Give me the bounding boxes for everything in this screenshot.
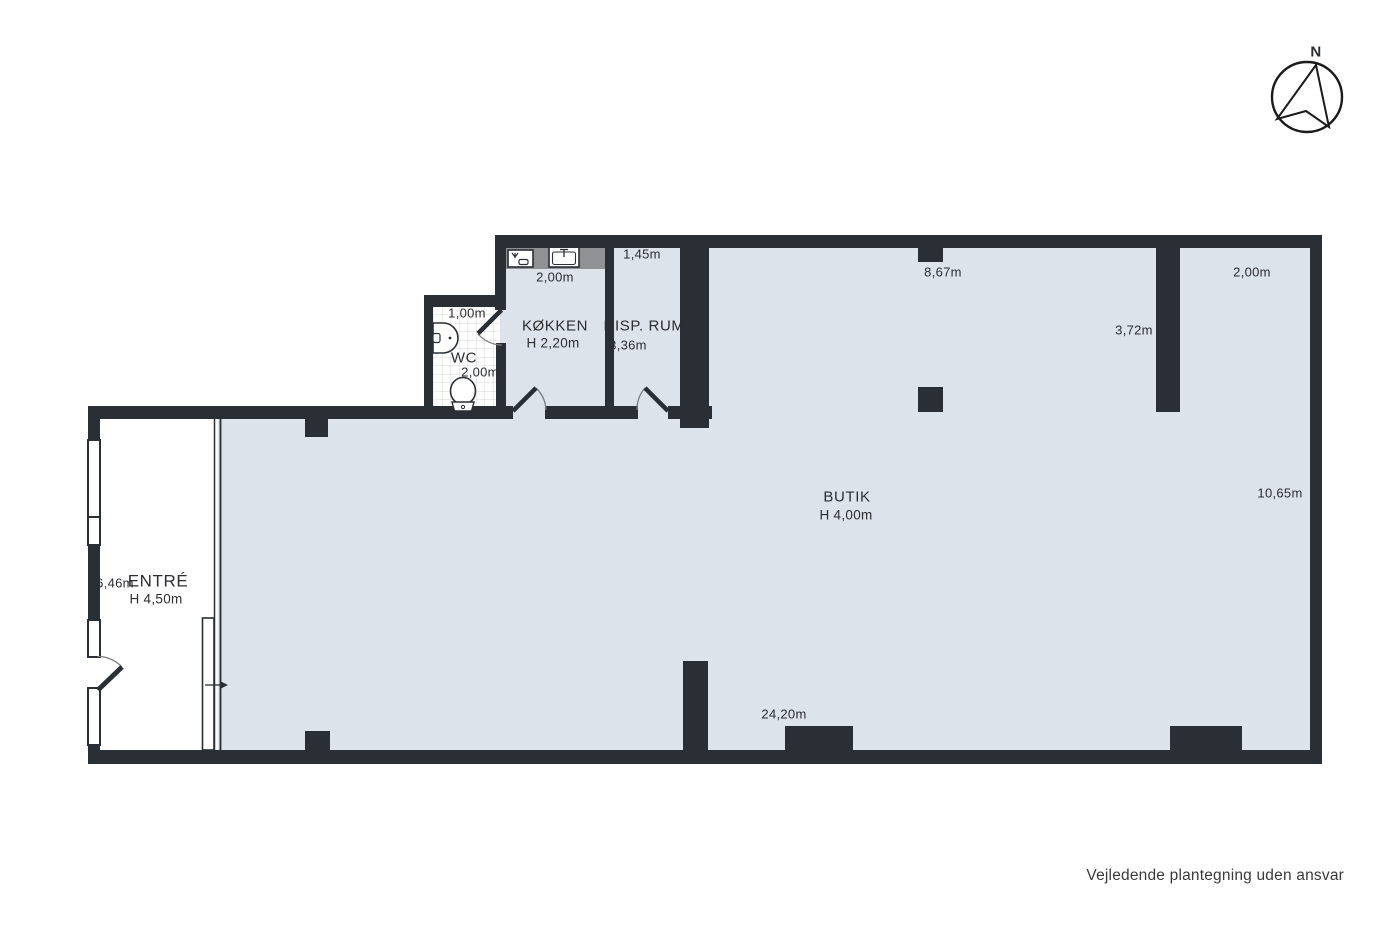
floor-plan-canvas xyxy=(0,0,1400,933)
dim-butik-bottom: 24,20m xyxy=(761,708,806,721)
compass-icon xyxy=(1272,62,1342,132)
dim-disp-width: 1,45m xyxy=(623,248,661,261)
dim-butik-inner-wall: 3,72m xyxy=(1115,324,1153,337)
wall-inner-372 xyxy=(1156,248,1180,412)
window-icon xyxy=(88,620,100,657)
dim-disp-depth: 3,36m xyxy=(609,339,647,352)
pilaster xyxy=(305,731,330,750)
wall-right xyxy=(1310,235,1322,764)
wall-stub-bottom xyxy=(683,661,708,750)
wall-protrusion xyxy=(785,726,853,750)
disclaimer-text: Vejledende plantegning uden ansvar xyxy=(1086,867,1344,885)
floor-plan-page: N 1,00m WC 2,00m 2,00m KØKKEN H 2,20m 1,… xyxy=(0,0,1400,933)
dim-kokken-width: 2,00m xyxy=(536,271,574,284)
window-icon xyxy=(88,440,100,545)
room-label-butik: BUTIK xyxy=(823,490,870,505)
dim-kokken-ceiling: H 2,20m xyxy=(526,336,579,350)
wall-entre-top xyxy=(88,406,513,419)
floor-butik-upper xyxy=(692,240,1315,420)
sliding-door-panel xyxy=(203,618,215,750)
kitchen-sink-icon xyxy=(508,250,533,267)
wc-toilet-icon xyxy=(451,378,476,412)
dim-butik-top-right: 2,00m xyxy=(1233,266,1271,279)
dim-butik-right: 10,65m xyxy=(1257,487,1302,500)
wall-stub-top xyxy=(918,248,943,262)
dim-butik-top: 8,67m xyxy=(924,266,962,279)
wall-segment xyxy=(545,406,638,419)
room-label-entre: ENTRÉ xyxy=(128,573,189,590)
dim-butik-ceiling: H 4,00m xyxy=(819,508,872,522)
wc-sink-icon xyxy=(433,323,458,353)
dim-wc-width: 1,00m xyxy=(448,307,486,320)
pilaster xyxy=(305,419,328,437)
column xyxy=(918,387,943,412)
floor-fills xyxy=(218,240,1315,755)
dim-entre-ceiling: H 4,50m xyxy=(129,592,182,606)
compass-north-label: N xyxy=(1310,45,1321,60)
dim-wc-depth: 2,00m xyxy=(461,366,499,379)
room-label-kokken: KØKKEN xyxy=(522,319,588,334)
wall-top xyxy=(495,235,1322,248)
wall-wc-left xyxy=(424,295,433,419)
wall-segment xyxy=(88,745,100,764)
wall-protrusion xyxy=(1170,726,1242,750)
wall-bottom xyxy=(88,750,1322,764)
window-icon xyxy=(88,688,100,745)
wall-wc-right xyxy=(496,343,506,419)
room-label-disp-rum: DISP. RUM xyxy=(604,319,685,334)
room-label-wc: WC xyxy=(451,351,477,366)
entrance-door xyxy=(98,656,123,690)
floor-butik-main xyxy=(218,410,1315,755)
kitchen-basin-icon xyxy=(549,247,579,267)
